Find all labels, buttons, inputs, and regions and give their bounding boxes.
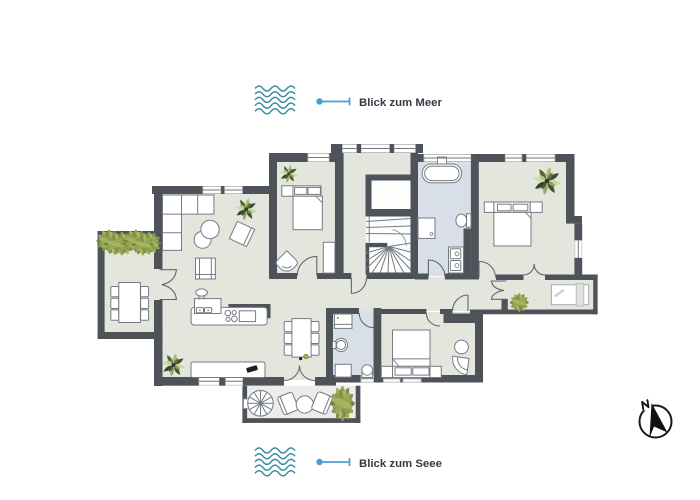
svg-text:Blick zum Meer: Blick zum Meer [359, 97, 442, 109]
svg-text:Blick zum Seee: Blick zum Seee [359, 458, 442, 470]
